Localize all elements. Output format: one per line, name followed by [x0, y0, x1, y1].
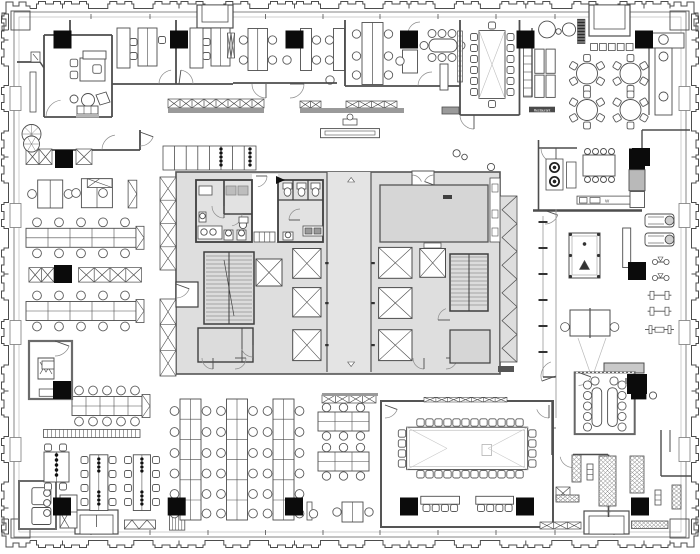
svg-text:Restaurant: Restaurant: [534, 108, 551, 112]
